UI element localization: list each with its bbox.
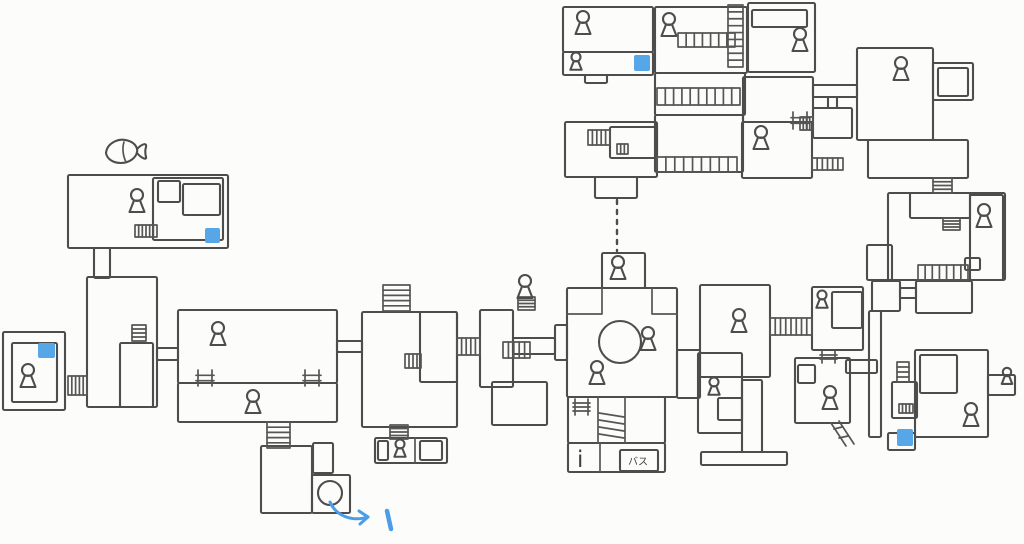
ladder-frame [383, 285, 410, 311]
npc-body [211, 334, 226, 346]
room [701, 452, 787, 465]
ladder-corridor [657, 157, 737, 172]
hand-drawn-map-page: iバス [0, 0, 1024, 544]
npc-icon [894, 57, 909, 80]
route-mark [387, 511, 391, 529]
ladder-icon [897, 362, 909, 382]
npc-body [590, 373, 605, 385]
npc-icon [708, 378, 719, 395]
npc-body [246, 402, 261, 414]
ladder-corridor [617, 144, 628, 154]
ladder-corridor [457, 338, 480, 355]
room [595, 177, 637, 198]
room [120, 343, 153, 407]
npc-icon [793, 28, 808, 51]
ladder-corridor [657, 88, 740, 105]
ladder-corridor [678, 33, 735, 47]
item-marker [38, 343, 55, 358]
room [362, 312, 457, 427]
npc-body [964, 415, 979, 427]
npc-head [824, 386, 836, 398]
room [492, 382, 547, 425]
room [157, 348, 178, 360]
room [677, 350, 700, 398]
ladder-frame [657, 157, 737, 172]
wall-detail [834, 427, 842, 429]
npc-head [794, 28, 806, 40]
wall-detail [599, 434, 624, 438]
npc-body [641, 339, 656, 351]
npc-icon [754, 126, 769, 149]
npc-icon [662, 13, 677, 36]
npc-icon [246, 390, 261, 413]
npc-head [663, 13, 675, 25]
fish-fin [123, 142, 126, 162]
info-label: i [577, 447, 583, 473]
ladder-icon [132, 325, 146, 341]
room [938, 68, 968, 96]
wall-detail [599, 427, 624, 431]
room [752, 10, 807, 27]
room [183, 184, 220, 215]
ladder-icon [933, 178, 952, 193]
fish-tail [137, 144, 146, 158]
room [900, 288, 916, 298]
wall-detail [831, 423, 846, 446]
ladder-icon [943, 218, 960, 230]
npc-head [212, 322, 224, 334]
room [742, 380, 762, 452]
npc-body [823, 398, 838, 410]
ladder-corridor [68, 376, 87, 395]
annotation-arrow [330, 502, 391, 529]
room [910, 193, 970, 218]
npc-head [755, 126, 767, 138]
room [718, 398, 742, 420]
room [567, 288, 677, 397]
room [795, 358, 850, 423]
npc-icon [394, 440, 405, 457]
ladder-icon [383, 285, 410, 311]
wall-detail [599, 413, 624, 417]
npc-body [21, 376, 36, 388]
ladder-corridor [503, 342, 530, 358]
npc-head [612, 256, 624, 268]
room [585, 75, 607, 83]
npc-body [576, 23, 591, 35]
room [813, 85, 857, 97]
npc-head [895, 57, 907, 69]
item-marker [634, 55, 650, 71]
ladder-frame [457, 338, 480, 355]
room [868, 140, 968, 178]
room [970, 195, 1003, 280]
npc-icon [641, 327, 656, 350]
npc-head [519, 275, 531, 287]
room [655, 115, 743, 172]
npc-icon [611, 256, 626, 279]
npc-head [978, 204, 990, 216]
npc-head [131, 189, 143, 201]
npc-head [965, 403, 977, 415]
ladder-corridor [135, 225, 157, 237]
npc-body [754, 138, 769, 150]
npc-icon [570, 53, 581, 70]
fish-body [106, 140, 137, 163]
npc-icon [211, 322, 226, 345]
wall-detail [567, 288, 602, 314]
npc-body [732, 321, 747, 333]
npc-body [611, 268, 626, 280]
npc-head [22, 364, 34, 376]
wall-detail [652, 288, 677, 314]
fountain-circle [599, 321, 641, 363]
room [832, 292, 862, 328]
room [158, 181, 180, 202]
wall-detail [599, 420, 624, 424]
room [94, 248, 110, 278]
npc-head [642, 327, 654, 339]
npc-icon [816, 291, 827, 308]
room [813, 108, 852, 138]
npc-head [733, 309, 745, 321]
npc-icon [21, 364, 36, 387]
ladder-corridor [812, 158, 843, 170]
npc-icon [732, 309, 747, 332]
item-marker [897, 429, 913, 446]
npc-body [894, 69, 909, 81]
room [420, 441, 442, 460]
npc-icon [130, 189, 145, 212]
room [743, 77, 813, 122]
ladder-corridor [588, 130, 610, 145]
npc-head [591, 361, 603, 373]
room [798, 365, 815, 383]
fish-icon [106, 140, 146, 163]
npc-body [977, 216, 992, 228]
room [337, 341, 362, 352]
room [555, 325, 567, 360]
room [178, 310, 337, 383]
wall-detail [839, 421, 854, 444]
room [812, 287, 863, 350]
ladder-frame [503, 342, 530, 358]
room [261, 446, 312, 513]
ladder-frame [68, 376, 87, 395]
room [872, 281, 900, 311]
npc-icon [576, 11, 591, 34]
ladder-frame [267, 422, 290, 448]
room [920, 355, 957, 393]
ladder-frame [588, 130, 610, 145]
room [916, 281, 972, 313]
npc-icon [977, 204, 992, 227]
ladder-icon [573, 399, 590, 415]
room [378, 441, 388, 460]
item-marker [205, 228, 220, 243]
ladder-corridor [770, 318, 812, 335]
npc-icon [590, 361, 605, 384]
npc-head [577, 11, 589, 23]
npc-icon [964, 403, 979, 426]
ladder-corridor [918, 265, 968, 280]
npc-icon [823, 386, 838, 409]
ladder-icon [267, 422, 290, 448]
bus-label: バス [628, 456, 648, 468]
ladder-frame [617, 144, 628, 154]
npc-icon [518, 275, 533, 298]
npc-body [130, 201, 145, 213]
room [828, 97, 837, 108]
npc-body [793, 40, 808, 52]
room [420, 312, 457, 382]
map-canvas: iバス [0, 0, 1024, 544]
npc-body [662, 25, 677, 37]
room [313, 443, 333, 473]
ladder-corridor [405, 354, 421, 368]
npc-head [247, 390, 259, 402]
ladder-corridor [899, 404, 913, 413]
